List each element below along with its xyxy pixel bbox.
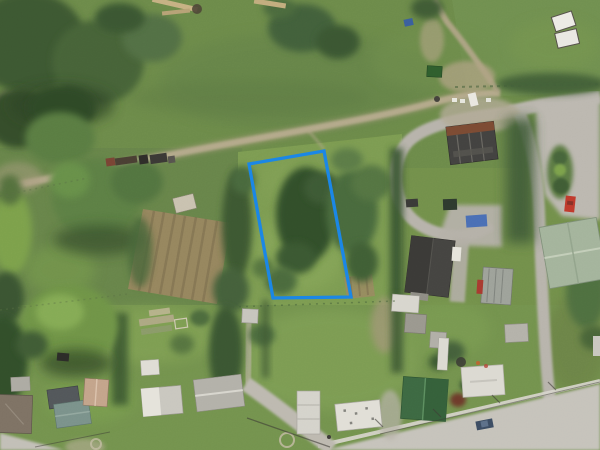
satellite-map	[0, 0, 600, 450]
photo-grain-overlay	[0, 0, 600, 450]
aerial-scene	[0, 0, 600, 450]
